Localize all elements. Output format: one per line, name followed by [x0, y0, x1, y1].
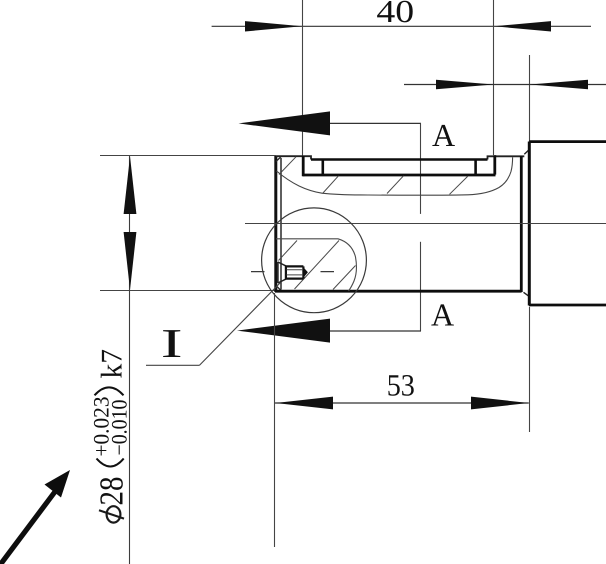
svg-text:53: 53: [387, 368, 415, 403]
svg-text:−0.010: −0.010: [107, 400, 132, 456]
svg-text:28: 28: [94, 477, 131, 506]
svg-text:A: A: [432, 117, 455, 153]
svg-text:k7: k7: [96, 349, 129, 379]
svg-text:40: 40: [376, 0, 414, 29]
svg-text:I: I: [161, 320, 183, 366]
svg-text:A: A: [431, 296, 454, 332]
